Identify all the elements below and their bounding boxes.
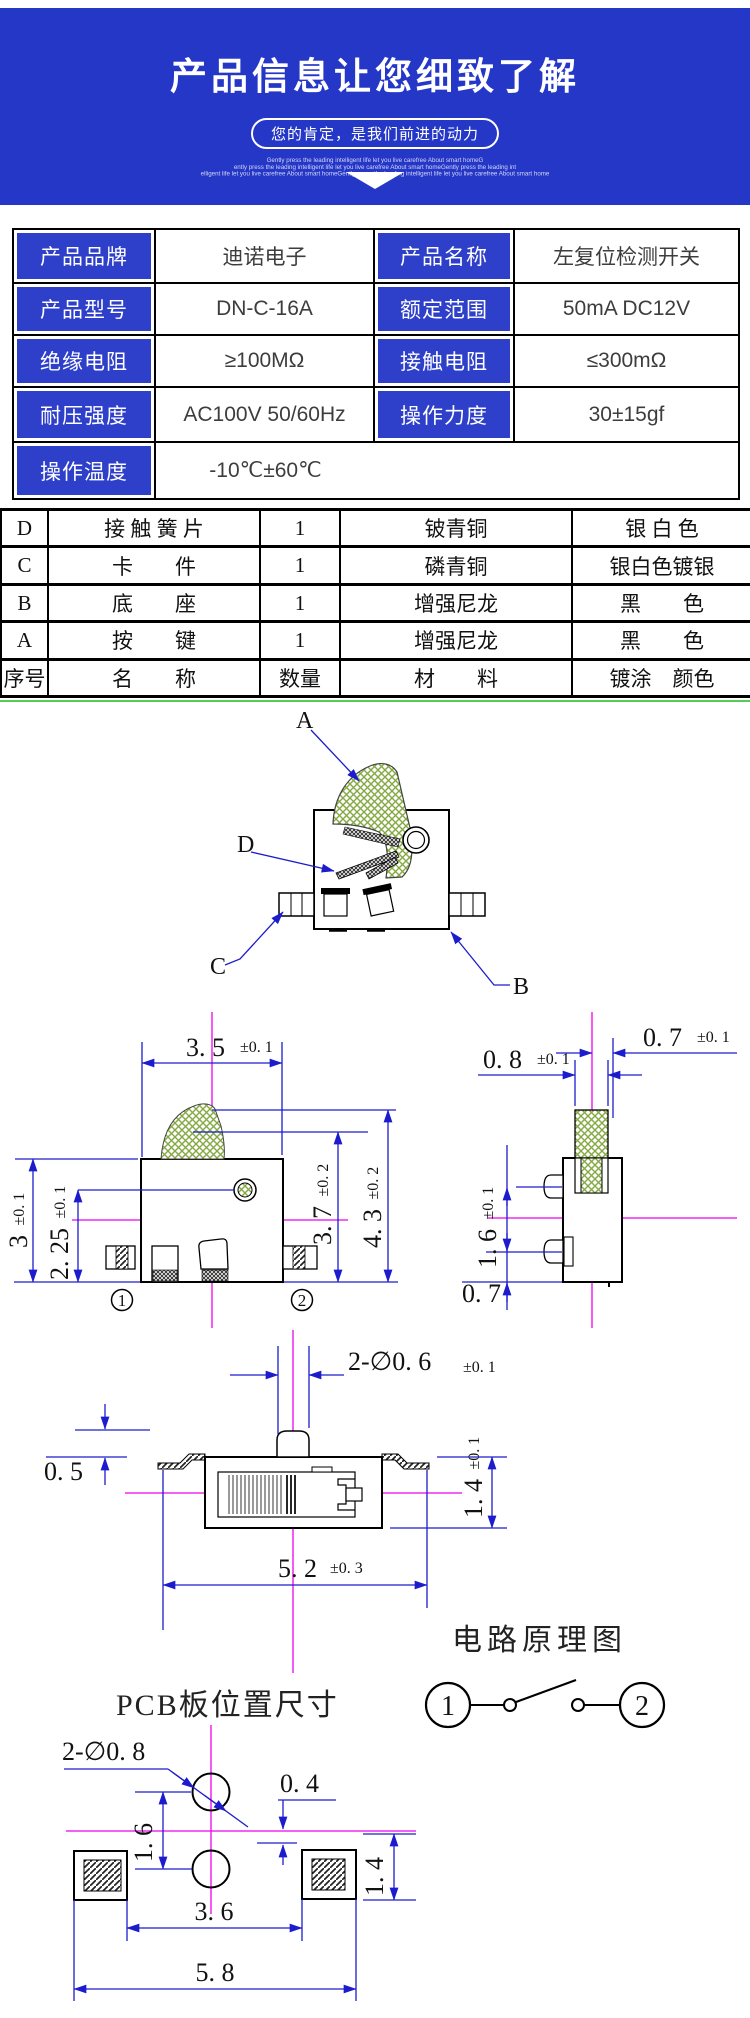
bom-header: 镀涂 颜色 <box>573 661 750 695</box>
dim-pcb-outer: 5. 8 <box>196 1958 235 1987</box>
bom-header: 数量 <box>261 661 341 695</box>
right-terminal <box>449 893 485 916</box>
down-triangle-icon <box>346 172 404 189</box>
part-label-c: C <box>210 954 226 980</box>
spec-value: 迪诺电子 <box>223 241 307 271</box>
dim-side-width: 0. 8 <box>483 1045 522 1074</box>
bom-qty: 1 <box>261 548 341 582</box>
pcb-layout: 2-∅0. 8 0. 4 1. 6 1. 4 3. 6 5. 8 <box>0 1712 750 2018</box>
topview-button <box>277 1431 309 1457</box>
fineprint-line: Gently press the leading intelligent lif… <box>143 157 608 164</box>
dim-pcb-pitch: 1. 6 <box>129 1823 158 1862</box>
dim-top-length-tol: ±0. 3 <box>330 1560 363 1577</box>
dim-side-width-tol: ±0. 1 <box>537 1051 570 1068</box>
bom-name: 接 触 簧 片 <box>49 511 261 545</box>
dim-pcb-offset: 0. 4 <box>280 1769 319 1798</box>
spec-label: 绝缘电阻 <box>17 339 151 383</box>
bom-name: 卡 件 <box>49 548 261 582</box>
bom-name: 按 键 <box>49 623 261 657</box>
bom-material: 增强尼龙 <box>341 586 573 620</box>
spec-label: 操作力度 <box>378 391 510 438</box>
table-header-row: 序号 名 称 数量 材 料 镀涂 颜色 <box>2 661 750 695</box>
bom-qty: 1 <box>261 623 341 657</box>
part-label-d: D <box>237 832 254 858</box>
spec-value: 30±15gf <box>589 403 665 427</box>
spec-label: 操作温度 <box>17 446 151 495</box>
bom-id: A <box>2 623 49 657</box>
dim-pcb-holes: 2-∅0. 8 <box>62 1737 145 1766</box>
bom-qty: 1 <box>261 511 341 545</box>
hero-banner: 产品信息让您细致了解 您的肯定，是我们前进的动力 Gently press th… <box>0 8 750 205</box>
spec-value: 50mA DC12V <box>563 297 690 321</box>
switch-contact <box>504 1699 516 1711</box>
pivot-inner <box>408 832 425 849</box>
dim-top-length: 5. 2 <box>278 1554 317 1583</box>
dim-front-width: 3. 5 <box>186 1033 225 1062</box>
leader-b <box>451 932 510 985</box>
side-plunger <box>575 1110 608 1158</box>
dim-top-standoff: 0. 5 <box>44 1457 83 1486</box>
dim-pcb-pad-height: 1. 4 <box>360 1857 389 1896</box>
table-row: D 接 触 簧 片 1 铍青铜 银 白 色 <box>2 511 750 548</box>
bom-color: 银 白 色 <box>573 511 750 545</box>
table-row: 产品型号 DN-C-16A 额定范围 50mA DC12V <box>14 284 738 336</box>
bom-name: 底 座 <box>49 586 261 620</box>
dim-side-top: 0. 7 <box>643 1023 682 1052</box>
bom-material: 铍青铜 <box>341 511 573 545</box>
table-row: C 卡 件 1 磷青铜 银白色镀银 <box>2 548 750 585</box>
dim-top-holes: 2-∅0. 6 <box>348 1347 431 1376</box>
table-row: 产品品牌 迪诺电子 产品名称 左复位检测开关 <box>14 230 738 284</box>
bom-color: 银白色镀银 <box>573 548 750 582</box>
left-terminal <box>279 893 314 916</box>
leader-c <box>225 912 283 965</box>
table-row: 操作温度 -10℃±60℃ <box>14 443 738 498</box>
left-wing <box>158 1454 205 1469</box>
table-row: 绝缘电阻 ≥100MΩ 接触电阻 ≤300mΩ <box>14 336 738 388</box>
dim-front-height: 3 ±0. 1 <box>4 1193 33 1248</box>
dim-side-pitch: 1. 6 ±0. 1 <box>473 1187 502 1268</box>
spec-label: 产品型号 <box>17 287 151 331</box>
bom-id: C <box>2 548 49 582</box>
spec-value: -10℃±60℃ <box>209 459 321 482</box>
bom-header: 名 称 <box>49 661 261 695</box>
bom-header: 材 料 <box>341 661 573 695</box>
right-wing <box>382 1454 429 1469</box>
dim-front-inner: 2. 25 ±0. 1 <box>45 1186 74 1280</box>
spec-table: 产品品牌 迪诺电子 产品名称 左复位检测开关 产品型号 DN-C-16A 额定范… <box>12 228 740 500</box>
foot <box>199 1239 228 1269</box>
bom-color: 黑 色 <box>573 623 750 657</box>
dim-front-h2: 3. 7 ±0. 2 <box>308 1164 337 1245</box>
spec-label: 耐压强度 <box>17 391 151 438</box>
spec-value: DN-C-16A <box>216 297 313 321</box>
spec-label: 产品品牌 <box>17 233 151 279</box>
bom-qty: 1 <box>261 586 341 620</box>
pin2-number: 2 <box>298 1291 307 1310</box>
table-row: A 按 键 1 增强尼龙 黑 色 <box>2 623 750 660</box>
dim-side-top-tol: ±0. 1 <box>697 1029 730 1046</box>
product-detail-page: 产品信息让您细致了解 您的肯定，是我们前进的动力 Gently press th… <box>0 0 750 2018</box>
dim-front-h3: 4. 3 ±0. 2 <box>358 1167 387 1248</box>
switch-blade <box>516 1680 576 1702</box>
pin1-number: 1 <box>118 1291 127 1310</box>
spec-value: ≤300mΩ <box>587 349 667 373</box>
inner-contact-bar <box>321 888 350 894</box>
dim-pcb-inner: 3. 6 <box>195 1897 234 1926</box>
assembly-diagram: A D C B <box>0 700 750 1000</box>
bom-header: 序号 <box>2 661 49 695</box>
bom-table: D 接 触 簧 片 1 铍青铜 银 白 色 C 卡 件 1 磷青铜 银白色镀银 … <box>0 508 750 698</box>
bom-color: 黑 色 <box>573 586 750 620</box>
fineprint-line: ently press the leading intelligent life… <box>143 164 608 171</box>
top-view: 2-∅0. 6 ±0. 1 0. 5 1. 4 ±0. 1 5. 2 ±0. 3 <box>0 1330 750 1680</box>
spec-value: ≥100MΩ <box>225 349 305 373</box>
dimension-views: 3. 5 ±0. 1 3 ±0. 1 2. 25 ±0. 1 3. 7 ±0. … <box>0 990 750 1335</box>
spec-label: 接触电阻 <box>378 339 510 383</box>
spec-value: 左复位检测开关 <box>553 241 700 271</box>
page-title: 产品信息让您细致了解 <box>0 8 750 100</box>
switch-contact <box>572 1699 584 1711</box>
bom-material: 磷青铜 <box>341 548 573 582</box>
table-row: 耐压强度 AC100V 50/60Hz 操作力度 30±15gf <box>14 388 738 443</box>
spec-value: AC100V 50/60Hz <box>183 403 345 427</box>
dim-front-width-tol: ±0. 1 <box>240 1039 273 1056</box>
dim-top-holes-tol: ±0. 1 <box>463 1359 496 1376</box>
table-row: B 底 座 1 增强尼龙 黑 色 <box>2 586 750 623</box>
spec-label: 额定范围 <box>378 287 510 331</box>
spec-label: 产品名称 <box>378 233 510 279</box>
circuit-title: 电路原理图 <box>452 1615 627 1659</box>
slogan-badge: 您的肯定，是我们前进的动力 <box>251 118 499 149</box>
inner-contact <box>324 894 347 916</box>
bom-id: B <box>2 586 49 620</box>
leader-a <box>311 730 359 781</box>
dim-top-height: 1. 4 ±0. 1 <box>459 1437 488 1518</box>
dim-side-bottom: 0. 7 <box>462 1279 501 1308</box>
bom-material: 增强尼龙 <box>341 623 573 657</box>
bom-id: D <box>2 511 49 545</box>
